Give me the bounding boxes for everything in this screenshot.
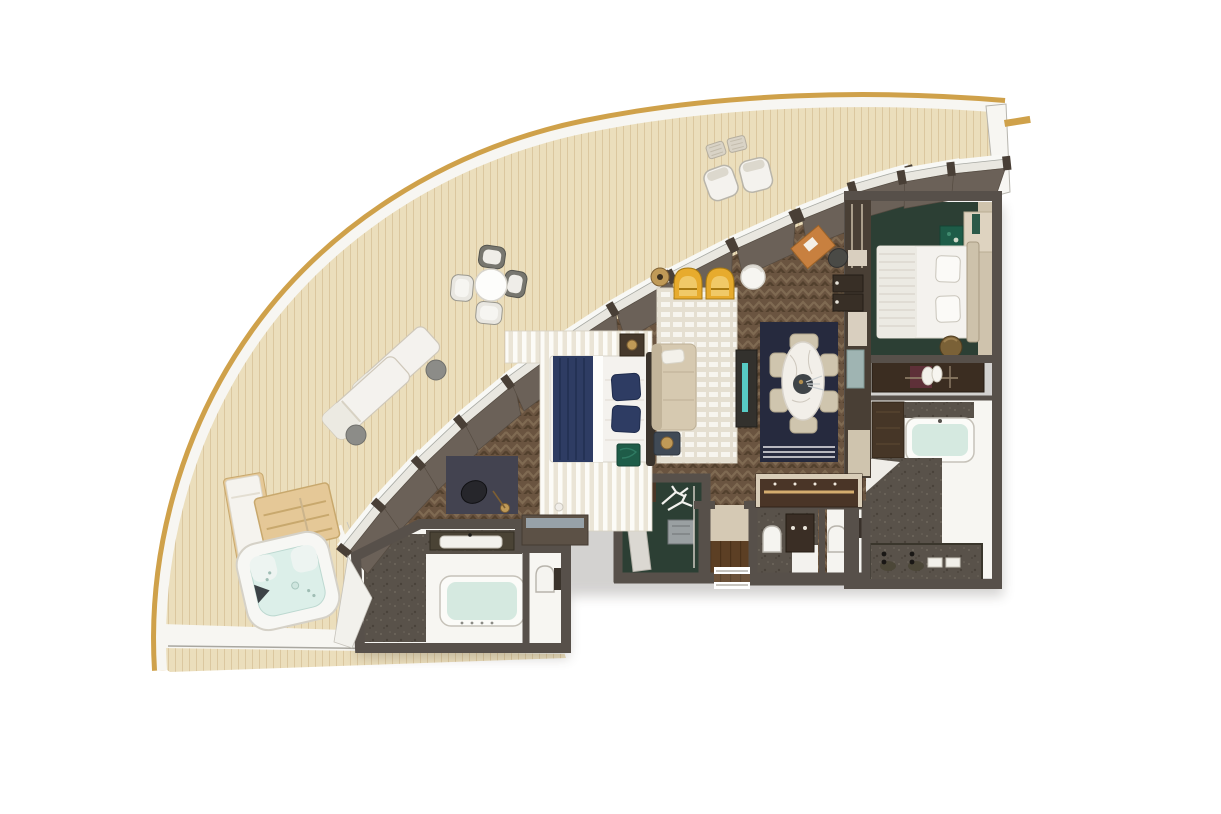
doorway-opening	[848, 430, 870, 476]
floor-plan-canvas	[0, 0, 1221, 814]
shelf-niche	[848, 312, 867, 346]
cabinet-glass	[972, 214, 980, 234]
outdoor-chair	[479, 305, 498, 321]
sofa	[652, 344, 696, 430]
double-vanity	[870, 544, 982, 580]
malachite-stool	[617, 444, 640, 466]
lumbar-pillow	[661, 349, 684, 364]
guest-toilet	[828, 526, 846, 552]
outdoor-chair	[454, 278, 470, 297]
shelf-niche	[848, 250, 867, 266]
tv-console	[736, 350, 757, 427]
dining-area	[760, 322, 838, 462]
deck-side-table	[426, 360, 446, 380]
vanity-tray	[946, 558, 960, 567]
shelf-mirror	[847, 350, 864, 388]
table-lamp	[661, 437, 673, 449]
hanging-clothes	[932, 366, 942, 382]
deck-side-table	[346, 425, 366, 445]
bed-second	[877, 242, 979, 342]
pillow	[936, 296, 961, 323]
entry-door	[714, 567, 750, 589]
yellow-armchair	[674, 268, 702, 299]
closet-cabinet	[668, 520, 694, 544]
bathtub-second	[906, 418, 974, 462]
toilet-cistern	[554, 568, 562, 590]
sofa-back	[652, 344, 662, 430]
sideboard	[756, 474, 862, 507]
master-bathtub	[440, 576, 524, 626]
side-table	[654, 432, 680, 455]
terrace-gold-tick	[1004, 116, 1031, 127]
second-bathroom	[866, 400, 994, 580]
yellow-armchair	[706, 268, 734, 299]
dresser-mirror	[526, 518, 584, 528]
corridor-floor-light	[706, 505, 753, 541]
table-lamp	[627, 340, 637, 350]
vase	[555, 503, 563, 511]
bath2-cabinet	[872, 402, 904, 458]
master-bath-basin	[440, 536, 502, 548]
desk-area	[446, 456, 518, 514]
vanity-tray	[928, 558, 942, 567]
dining-table	[782, 342, 824, 420]
pillow-navy	[611, 405, 640, 432]
bed2-pleats	[877, 246, 917, 338]
floor-plan-svg	[0, 0, 1221, 814]
pillow	[936, 256, 961, 283]
cylinder-table	[741, 265, 765, 289]
guest-vanity	[786, 514, 814, 552]
second-bedroom	[866, 202, 994, 362]
master-toilet	[536, 566, 554, 592]
pillow-navy	[611, 373, 641, 401]
outdoor-table	[475, 269, 507, 301]
tv-screen	[742, 363, 748, 412]
bedroom2-wardrobe	[872, 362, 984, 392]
guest-toilet	[763, 526, 781, 552]
headboard	[967, 242, 979, 342]
